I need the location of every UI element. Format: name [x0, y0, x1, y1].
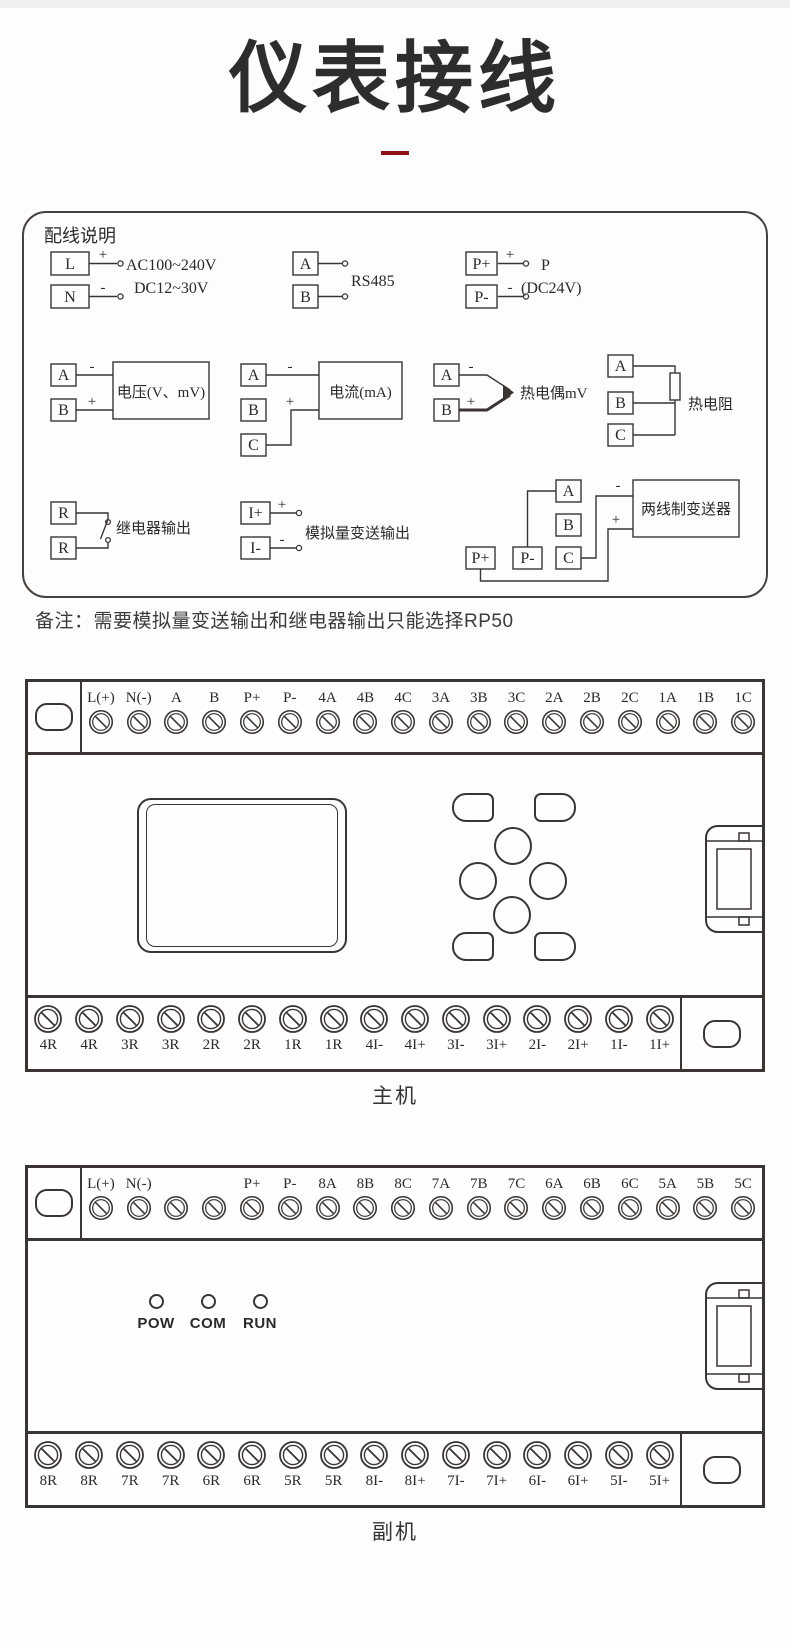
- terminal-label: N(-): [126, 1174, 152, 1195]
- svg-text:热电偶mV: 热电偶mV: [520, 385, 588, 402]
- svg-text:热电阻: 热电阻: [688, 396, 733, 413]
- led-indicator-row: POWCOMRUN: [130, 1294, 286, 1332]
- screw-terminal-icon: [33, 1004, 63, 1034]
- led-icon: [149, 1294, 164, 1309]
- svg-text:继电器输出: 继电器输出: [116, 520, 191, 537]
- terminal-label: 8R: [40, 1471, 58, 1492]
- display-screen-inner: [146, 804, 338, 947]
- terminal: 5C: [724, 1168, 762, 1238]
- terminal: P+: [233, 1168, 271, 1238]
- relay-output-wiring: R R 继电器输出: [51, 502, 191, 559]
- terminal: 3B: [460, 682, 498, 752]
- note-text: 备注：需要模拟量变送输出和继电器输出只能选择RP50: [35, 606, 514, 633]
- screw-terminal-icon: [390, 1195, 416, 1221]
- screw-terminal-icon: [163, 709, 189, 735]
- screw-terminal-icon: [163, 1195, 189, 1221]
- terminal: 3R: [150, 998, 191, 1069]
- led-indicator-run: RUN: [234, 1294, 286, 1332]
- terminal: 1R: [273, 998, 314, 1069]
- terminal: 4A: [309, 682, 347, 752]
- terminal: A: [158, 682, 196, 752]
- thermocouple-junction-arrow: [503, 385, 514, 401]
- mounting-hole-icon: [703, 1020, 741, 1048]
- terminal-label: 3C: [508, 688, 526, 709]
- svg-text:+: +: [286, 394, 294, 410]
- terminal: 2R: [191, 998, 232, 1069]
- terminal-label: 7I-: [447, 1471, 465, 1492]
- page-title: 仪表接线: [0, 30, 790, 128]
- svg-text:-: -: [90, 359, 95, 375]
- terminal-label: 1A: [658, 688, 676, 709]
- terminal: P+: [233, 682, 271, 752]
- terminal-label: B: [209, 688, 219, 709]
- main-unit-body: [28, 755, 762, 995]
- screw-terminal-icon: [730, 1195, 756, 1221]
- terminal-label: 4B: [357, 688, 375, 709]
- screw-terminal-icon: [115, 1004, 145, 1034]
- screw-terminal-icon: [196, 1440, 226, 1470]
- secondary-unit-label: 副机: [0, 1516, 790, 1546]
- terminal-label: 6I+: [568, 1471, 589, 1492]
- terminal: 6R: [191, 1434, 232, 1505]
- screw-terminal-icon: [617, 709, 643, 735]
- svg-text:A: A: [58, 367, 70, 384]
- screw-terminal-icon: [645, 1004, 675, 1034]
- svg-text:电流(mA): 电流(mA): [329, 384, 392, 401]
- screw-terminal-icon: [126, 709, 152, 735]
- secondary-unit-bottom-terminal-strip: 8R8R7R7R6R6R5R5R8I-8I+7I-7I+6I-6I+5I-5I+: [28, 1431, 762, 1505]
- screw-terminal-icon: [278, 1440, 308, 1470]
- screw-terminal-icon: [655, 1195, 681, 1221]
- terminal-label: 7A: [432, 1174, 450, 1195]
- side-connector-icon: [703, 1280, 765, 1392]
- main-unit-bottom-terminal-strip: 4R4R3R3R2R2R1R1R4I-4I+3I-3I+2I-2I+1I-1I+: [28, 995, 762, 1069]
- voltage-input-wiring: A B - + 电压(V、mV): [51, 359, 209, 421]
- terminal-label: 6R: [203, 1471, 221, 1492]
- screw-terminal-icon: [201, 1195, 227, 1221]
- svg-text:-: -: [288, 359, 293, 375]
- keypad-bottom-left-button: [452, 932, 494, 961]
- main-unit-top-terminal-strip: L(+)N(-)ABP+P-4A4B4C3A3B3C2A2B2C1A1B1C: [28, 682, 762, 755]
- terminal-label: 2B: [583, 688, 601, 709]
- two-wire-transmitter-wiring: A B C P+ P- 两线制变送器 - +: [466, 478, 739, 581]
- terminal-label: 6A: [545, 1174, 563, 1195]
- terminal: 5I-: [599, 1434, 640, 1505]
- screw-terminal-icon: [604, 1440, 634, 1470]
- terminal-label: 2C: [621, 688, 639, 709]
- terminal-label: A: [171, 688, 182, 709]
- keypad-up-button: [494, 827, 532, 865]
- terminal-label: 7I+: [486, 1471, 507, 1492]
- terminal-label: 5B: [697, 1174, 715, 1195]
- terminal-label: 1I-: [610, 1035, 628, 1056]
- screw-terminal-icon: [277, 709, 303, 735]
- terminal: 7R: [150, 1434, 191, 1505]
- rtd-wiring: A B C 热电阻: [608, 355, 733, 446]
- terminal: 7R: [110, 1434, 151, 1505]
- keypad-down-button: [493, 896, 531, 934]
- terminal: 8I+: [395, 1434, 436, 1505]
- screw-terminal-icon: [115, 1440, 145, 1470]
- wiring-diagram: 配线说明 L + N - AC100~240V DC12~30V A B RS4…: [24, 213, 766, 596]
- screw-terminal-icon: [428, 1195, 454, 1221]
- terminal: 3I+: [476, 998, 517, 1069]
- svg-text:RS485: RS485: [351, 273, 395, 290]
- terminal: 4I-: [354, 998, 395, 1069]
- terminal: [195, 1168, 233, 1238]
- mounting-hole-cell: [28, 1168, 82, 1238]
- screw-terminal-icon: [503, 709, 529, 735]
- terminal: 6B: [573, 1168, 611, 1238]
- svg-text:+: +: [278, 497, 286, 513]
- terminal-label: 6B: [583, 1174, 601, 1195]
- screw-terminal-icon: [201, 709, 227, 735]
- svg-text:A: A: [248, 367, 260, 384]
- thermocouple-wiring: A B - + 热电偶mV: [434, 359, 588, 421]
- screw-terminal-icon: [645, 1440, 675, 1470]
- svg-text:-: -: [101, 280, 106, 296]
- terminal-label: 4R: [40, 1035, 58, 1056]
- screw-terminal-icon: [74, 1004, 104, 1034]
- terminal-label: 5R: [284, 1471, 302, 1492]
- screw-terminal-icon: [482, 1004, 512, 1034]
- terminal-label: 2I-: [529, 1035, 547, 1056]
- screw-terminal-icon: [400, 1440, 430, 1470]
- secondary-unit-top-terminals: L(+)N(-)P+P-8A8B8C7A7B7C6A6B6C5A5B5C: [82, 1168, 762, 1238]
- screw-terminal-icon: [196, 1004, 226, 1034]
- svg-text:B: B: [615, 395, 626, 412]
- screw-terminal-icon: [74, 1440, 104, 1470]
- screw-terminal-icon: [239, 1195, 265, 1221]
- svg-text:-: -: [508, 280, 513, 296]
- terminal: 2B: [573, 682, 611, 752]
- screw-terminal-icon: [237, 1004, 267, 1034]
- terminal: B: [195, 682, 233, 752]
- screw-terminal-icon: [315, 1195, 341, 1221]
- terminal-label: 8R: [80, 1471, 98, 1492]
- screw-terminal-icon: [522, 1440, 552, 1470]
- svg-text:B: B: [441, 402, 452, 419]
- svg-text:-: -: [469, 359, 474, 375]
- screw-terminal-icon: [156, 1440, 186, 1470]
- terminal: 1I+: [639, 998, 680, 1069]
- mounting-hole-icon: [35, 1189, 73, 1217]
- rs485-wiring: A B RS485: [293, 252, 395, 308]
- terminal-label: 2R: [243, 1035, 261, 1056]
- terminal: 3R: [110, 998, 151, 1069]
- terminal: 4R: [69, 998, 110, 1069]
- keypad-bottom-right-button: [534, 932, 576, 961]
- terminal-label: 4I+: [405, 1035, 426, 1056]
- terminal-label: 1B: [697, 688, 715, 709]
- svg-text:A: A: [300, 256, 312, 273]
- svg-text:B: B: [248, 402, 259, 419]
- terminal: 6I+: [558, 1434, 599, 1505]
- terminal-label: 8A: [318, 1174, 336, 1195]
- terminal: 4I+: [395, 998, 436, 1069]
- terminal-label: 2A: [545, 688, 563, 709]
- svg-text:A: A: [563, 483, 575, 500]
- screw-terminal-icon: [441, 1440, 471, 1470]
- terminal: 7C: [498, 1168, 536, 1238]
- terminal: 4B: [346, 682, 384, 752]
- power-supply-wiring: L + N - AC100~240V DC12~30V: [51, 247, 217, 308]
- terminal-label: 3A: [432, 688, 450, 709]
- keypad-top-right-button: [534, 793, 576, 822]
- svg-text:+: +: [467, 394, 475, 410]
- main-unit-bottom-terminals: 4R4R3R3R2R2R1R1R4I-4I+3I-3I+2I-2I+1I-1I+: [28, 998, 680, 1069]
- screw-terminal-icon: [503, 1195, 529, 1221]
- screw-terminal-icon: [604, 1004, 634, 1034]
- screw-terminal-icon: [278, 1004, 308, 1034]
- terminal: 7I+: [476, 1434, 517, 1505]
- terminal-label: 8C: [394, 1174, 412, 1195]
- keypad-right-button: [529, 862, 567, 900]
- terminal: 6A: [535, 1168, 573, 1238]
- terminal-label: 2I+: [568, 1035, 589, 1056]
- screw-terminal-icon: [692, 709, 718, 735]
- top-band: [0, 0, 790, 8]
- terminal: 1R: [313, 998, 354, 1069]
- svg-text:+: +: [88, 394, 96, 410]
- screw-terminal-icon: [315, 709, 341, 735]
- keypad-left-button: [459, 862, 497, 900]
- screw-terminal-icon: [88, 1195, 114, 1221]
- svg-text:P+: P+: [473, 256, 491, 273]
- rtd-resistor-symbol: [670, 373, 680, 400]
- terminal: 4C: [384, 682, 422, 752]
- terminal: 2I-: [517, 998, 558, 1069]
- screw-terminal-icon: [541, 1195, 567, 1221]
- screw-terminal-icon: [352, 709, 378, 735]
- led-indicator-com: COM: [182, 1294, 234, 1332]
- screw-terminal-icon: [359, 1004, 389, 1034]
- terminal: 1C: [724, 682, 762, 752]
- terminal-label: L(+): [87, 688, 115, 709]
- svg-text:C: C: [563, 550, 574, 567]
- terminal-label: P+: [244, 1174, 261, 1195]
- terminal: 7B: [460, 1168, 498, 1238]
- terminal-label: 8I+: [405, 1471, 426, 1492]
- mounting-hole-icon: [703, 1456, 741, 1484]
- terminal: 4R: [28, 998, 69, 1069]
- keypad-top-left-button: [452, 793, 494, 822]
- terminal: 7I-: [436, 1434, 477, 1505]
- screw-terminal-icon: [352, 1195, 378, 1221]
- terminal: 5R: [273, 1434, 314, 1505]
- terminal-label: 7C: [508, 1174, 526, 1195]
- terminal: 2R: [232, 998, 273, 1069]
- terminal-label: 3I+: [486, 1035, 507, 1056]
- terminal-label: 1R: [284, 1035, 302, 1056]
- screw-terminal-icon: [692, 1195, 718, 1221]
- svg-text:模拟量变送输出: 模拟量变送输出: [305, 525, 410, 542]
- terminal: N(-): [120, 682, 158, 752]
- terminal-label: 5I-: [610, 1471, 628, 1492]
- mounting-hole-cell: [28, 682, 82, 752]
- terminal-label: 1R: [325, 1035, 343, 1056]
- terminal-label: 7R: [121, 1471, 139, 1492]
- terminal: 6R: [232, 1434, 273, 1505]
- terminal-label: 8I-: [366, 1471, 384, 1492]
- svg-text:P+: P+: [472, 550, 490, 567]
- main-unit-panel: L(+)N(-)ABP+P-4A4B4C3A3B3C2A2B2C1A1B1C 4…: [25, 679, 765, 1072]
- screw-terminal-icon: [579, 709, 605, 735]
- side-connector-icon: [703, 823, 765, 935]
- terminal-label: 3R: [162, 1035, 180, 1056]
- svg-text:-: -: [280, 532, 285, 548]
- mounting-hole-cell: [680, 998, 762, 1069]
- terminal: 1A: [649, 682, 687, 752]
- screw-terminal-icon: [428, 709, 454, 735]
- svg-text:(DC24V): (DC24V): [521, 280, 581, 297]
- screw-terminal-icon: [466, 709, 492, 735]
- terminal: 5B: [687, 1168, 725, 1238]
- terminal-label: 8B: [357, 1174, 375, 1195]
- secondary-unit-top-terminal-strip: L(+)N(-)P+P-8A8B8C7A7B7C6A6B6C5A5B5C: [28, 1168, 762, 1241]
- svg-text:I+: I+: [248, 505, 262, 522]
- svg-text:C: C: [615, 427, 626, 444]
- led-label: COM: [190, 1315, 227, 1332]
- terminal-label: 1C: [734, 688, 752, 709]
- aux-power-wiring: P+ + P- - P (DC24V): [466, 247, 581, 308]
- terminal-label: 4A: [318, 688, 336, 709]
- screw-terminal-icon: [319, 1004, 349, 1034]
- terminal: 2A: [535, 682, 573, 752]
- terminal-label: 5I+: [649, 1471, 670, 1492]
- led-label: RUN: [243, 1315, 277, 1332]
- terminal: 2C: [611, 682, 649, 752]
- screw-terminal-icon: [655, 709, 681, 735]
- svg-text:B: B: [563, 517, 574, 534]
- terminal: 1I-: [599, 998, 640, 1069]
- terminal-label: 7R: [162, 1471, 180, 1492]
- title-underline: [381, 151, 409, 155]
- screw-terminal-icon: [563, 1004, 593, 1034]
- main-unit-label: 主机: [0, 1080, 790, 1110]
- terminal: 1B: [687, 682, 725, 752]
- screw-terminal-icon: [237, 1440, 267, 1470]
- svg-text:+: +: [99, 247, 107, 263]
- screw-terminal-icon: [563, 1440, 593, 1470]
- terminal: [158, 1168, 196, 1238]
- terminal: 3C: [498, 682, 536, 752]
- terminal-label: 4R: [80, 1035, 98, 1056]
- main-unit-top-terminals: L(+)N(-)ABP+P-4A4B4C3A3B3C2A2B2C1A1B1C: [82, 682, 762, 752]
- screw-terminal-icon: [390, 709, 416, 735]
- terminal: 8B: [346, 1168, 384, 1238]
- svg-text:B: B: [300, 289, 311, 306]
- relay-switch-blade: [101, 520, 109, 540]
- screw-terminal-icon: [522, 1004, 552, 1034]
- terminal: 2I+: [558, 998, 599, 1069]
- screw-terminal-icon: [88, 709, 114, 735]
- secondary-unit-body: POWCOMRUN: [28, 1241, 762, 1431]
- display-screen: [137, 798, 347, 953]
- terminal: N(-): [120, 1168, 158, 1238]
- terminal: 5R: [313, 1434, 354, 1505]
- led-indicator-pow: POW: [130, 1294, 182, 1332]
- mounting-hole-cell: [680, 1434, 762, 1505]
- terminal: 6I-: [517, 1434, 558, 1505]
- svg-text:A: A: [615, 358, 627, 375]
- terminal: 6C: [611, 1168, 649, 1238]
- led-icon: [253, 1294, 268, 1309]
- wiring-instructions-box: 配线说明 L + N - AC100~240V DC12~30V A B RS4…: [22, 211, 768, 598]
- screw-terminal-icon: [482, 1440, 512, 1470]
- terminal-label: P-: [283, 688, 296, 709]
- terminal-label: 3R: [121, 1035, 139, 1056]
- terminal-label: 4C: [394, 688, 412, 709]
- terminal-label: 3I-: [447, 1035, 465, 1056]
- terminal-label: 2R: [203, 1035, 221, 1056]
- screw-terminal-icon: [126, 1195, 152, 1221]
- svg-text:+: +: [506, 247, 514, 263]
- terminal-label: 5C: [734, 1174, 752, 1195]
- secondary-unit-panel: L(+)N(-)P+P-8A8B8C7A7B7C6A6B6C5A5B5C POW…: [25, 1165, 765, 1508]
- terminal-label: P-: [283, 1174, 296, 1195]
- terminal-label: 5R: [325, 1471, 343, 1492]
- terminal: L(+): [82, 682, 120, 752]
- mounting-hole-icon: [35, 703, 73, 731]
- terminal: P-: [271, 682, 309, 752]
- terminal: 3A: [422, 682, 460, 752]
- svg-text:L: L: [65, 256, 75, 273]
- svg-text:R: R: [58, 505, 69, 522]
- screw-terminal-icon: [617, 1195, 643, 1221]
- terminal: 8R: [69, 1434, 110, 1505]
- svg-text:R: R: [58, 540, 69, 557]
- svg-text:N: N: [64, 289, 76, 306]
- terminal: 8R: [28, 1434, 69, 1505]
- terminal-label: 5A: [658, 1174, 676, 1195]
- screw-terminal-icon: [579, 1195, 605, 1221]
- terminal-label: P+: [244, 688, 261, 709]
- terminal: P-: [271, 1168, 309, 1238]
- led-icon: [201, 1294, 216, 1309]
- svg-text:AC100~240V: AC100~240V: [126, 257, 217, 274]
- screw-terminal-icon: [319, 1440, 349, 1470]
- terminal-label: N(-): [126, 688, 152, 709]
- svg-text:P-: P-: [520, 550, 534, 567]
- svg-text:+: +: [612, 512, 620, 528]
- led-label: POW: [137, 1315, 174, 1332]
- terminal-label: 7B: [470, 1174, 488, 1195]
- terminal: 8C: [384, 1168, 422, 1238]
- secondary-unit-bottom-terminals: 8R8R7R7R6R6R5R5R8I-8I+7I-7I+6I-6I+5I-5I+: [28, 1434, 680, 1505]
- terminal-label: 6I-: [529, 1471, 547, 1492]
- wiring-heading: 配线说明: [44, 226, 116, 246]
- terminal-label: 1I+: [649, 1035, 670, 1056]
- svg-text:B: B: [58, 402, 69, 419]
- screw-terminal-icon: [156, 1004, 186, 1034]
- screw-terminal-icon: [541, 709, 567, 735]
- screw-terminal-icon: [730, 709, 756, 735]
- svg-text:I-: I-: [250, 540, 261, 557]
- svg-text:-: -: [616, 478, 621, 494]
- terminal: L(+): [82, 1168, 120, 1238]
- screw-terminal-icon: [400, 1004, 430, 1034]
- terminal-label: L(+): [87, 1174, 115, 1195]
- terminal: 7A: [422, 1168, 460, 1238]
- terminal: 5I+: [639, 1434, 680, 1505]
- current-input-wiring: A B C - + 电流(mA): [241, 359, 402, 456]
- terminal-label: 6C: [621, 1174, 639, 1195]
- terminal: 3I-: [436, 998, 477, 1069]
- terminal: 8A: [309, 1168, 347, 1238]
- svg-text:DC12~30V: DC12~30V: [134, 280, 209, 297]
- svg-text:两线制变送器: 两线制变送器: [641, 501, 731, 518]
